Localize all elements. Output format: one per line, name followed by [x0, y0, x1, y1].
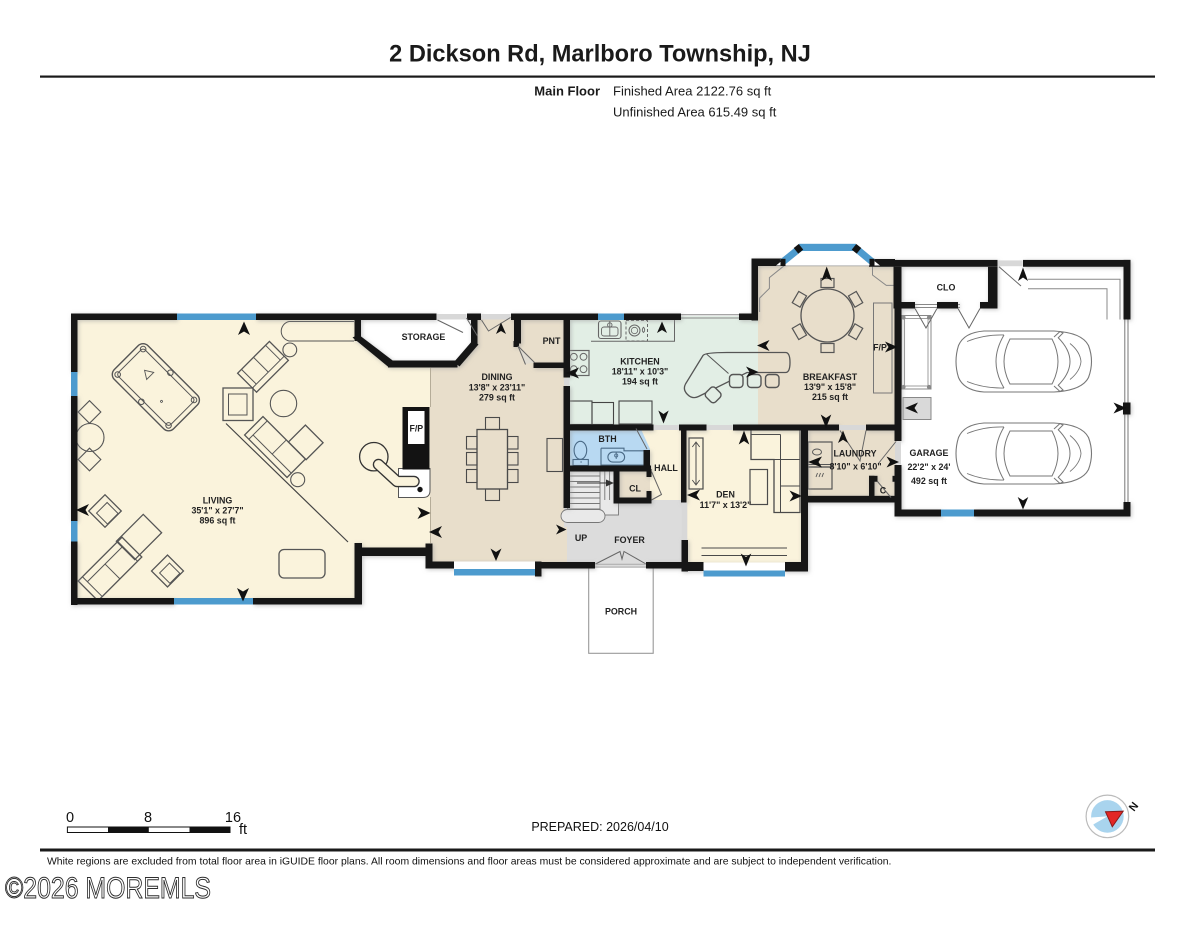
svg-text:UP: UP	[575, 533, 587, 543]
svg-text:PORCH: PORCH	[605, 607, 637, 617]
svg-text:0: 0	[66, 810, 74, 826]
svg-text:22'2" x 24': 22'2" x 24'	[908, 462, 951, 472]
svg-text:Main Floor: Main Floor	[534, 84, 600, 99]
svg-text:N: N	[1127, 800, 1141, 814]
svg-text:C: C	[880, 486, 887, 496]
svg-text:8: 8	[144, 810, 152, 826]
svg-text:896 sq ft: 896 sq ft	[199, 516, 235, 526]
svg-text:F/P: F/P	[873, 343, 887, 353]
svg-text:ft: ft	[239, 822, 247, 838]
svg-text:DEN: DEN	[716, 490, 735, 500]
svg-text:2 Dickson Rd, Marlboro Townshi: 2 Dickson Rd, Marlboro Township, NJ	[389, 42, 811, 68]
svg-text:8'10" x 6'10": 8'10" x 6'10"	[829, 462, 881, 472]
svg-text:BTH: BTH	[598, 434, 616, 444]
svg-text:DINING: DINING	[481, 372, 512, 382]
svg-text:LAUNDRY: LAUNDRY	[833, 449, 876, 459]
svg-text:35'1" x 27'7": 35'1" x 27'7"	[191, 506, 243, 516]
svg-text:18'11" x 10'3": 18'11" x 10'3"	[612, 367, 669, 377]
svg-text:492 sq ft: 492 sq ft	[911, 476, 947, 486]
svg-text:279 sq ft: 279 sq ft	[479, 393, 515, 403]
svg-text:194 sq ft: 194 sq ft	[622, 377, 658, 387]
svg-text:FOYER: FOYER	[614, 535, 645, 545]
svg-text:215 sq ft: 215 sq ft	[812, 392, 848, 402]
svg-text:13'8" x 23'11": 13'8" x 23'11"	[469, 383, 526, 393]
svg-text:KITCHEN: KITCHEN	[620, 357, 659, 367]
svg-text:White regions are excluded fro: White regions are excluded from total fl…	[47, 857, 891, 868]
svg-text:LIVING: LIVING	[203, 496, 233, 506]
svg-text:©2026 MOREMLS: ©2026 MOREMLS	[5, 872, 211, 905]
svg-text:F/P: F/P	[409, 424, 423, 434]
svg-text:PNT: PNT	[543, 336, 561, 346]
svg-text:PREPARED: 2026/04/10: PREPARED: 2026/04/10	[531, 820, 668, 834]
svg-text:HALL: HALL	[654, 463, 678, 473]
svg-text:BREAKFAST: BREAKFAST	[803, 372, 858, 382]
svg-text:11'7" x 13'2": 11'7" x 13'2"	[700, 500, 752, 510]
svg-text:CLO: CLO	[937, 283, 956, 293]
svg-text:CL: CL	[629, 484, 641, 494]
svg-text:STORAGE: STORAGE	[402, 332, 446, 342]
svg-text:Unfinished Area 615.49 sq ft: Unfinished Area 615.49 sq ft	[613, 105, 777, 120]
svg-text:Finished Area 2122.76 sq ft: Finished Area 2122.76 sq ft	[613, 84, 772, 99]
svg-text:GARAGE: GARAGE	[910, 448, 949, 458]
svg-text:13'9" x 15'8": 13'9" x 15'8"	[804, 382, 856, 392]
